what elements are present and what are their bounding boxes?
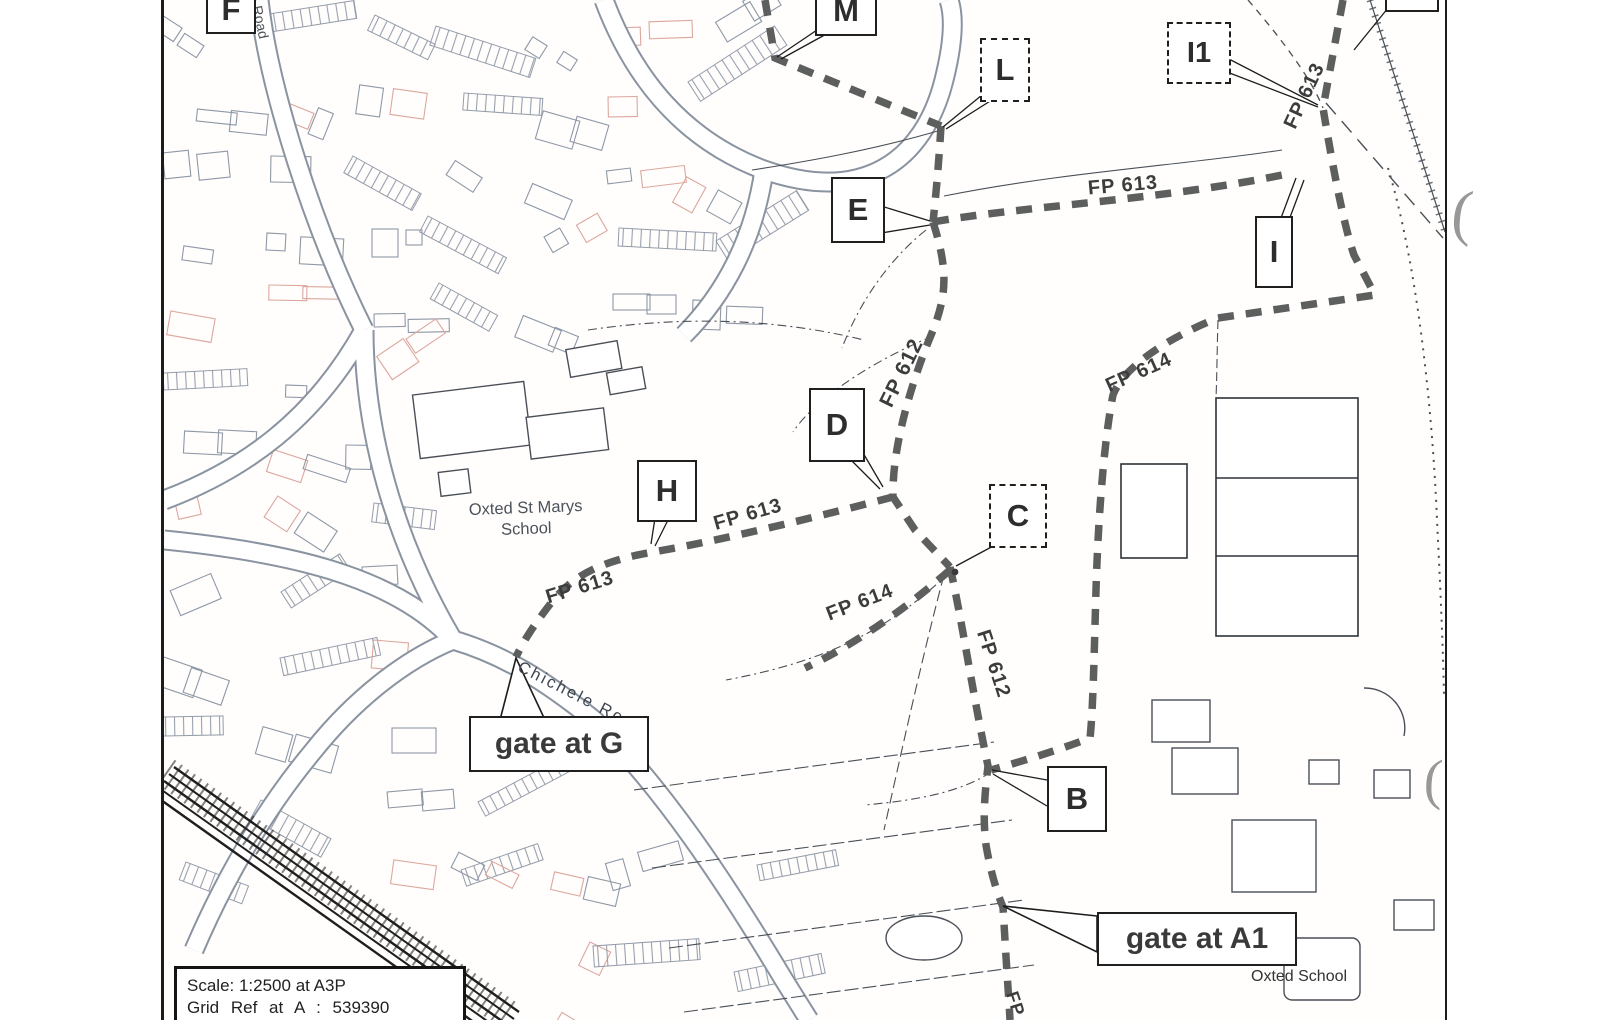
gate-at-a1-label: gate at A1 bbox=[1126, 922, 1268, 956]
marker-box-i: I bbox=[1255, 216, 1293, 288]
marker-letter: M bbox=[833, 0, 859, 29]
marker-letter: D bbox=[826, 407, 848, 443]
scale-line: Scale: 1:2500 at A3P bbox=[187, 975, 453, 997]
marker-letter: B bbox=[1066, 781, 1088, 817]
gate-at-a1-callout: gate at A1 bbox=[1097, 912, 1297, 966]
marker-letter: H bbox=[656, 473, 678, 509]
marker-letter: E bbox=[848, 192, 869, 228]
map-canvas: F M L I1 I E D H C B gate at G gate at A… bbox=[161, 0, 1447, 1020]
oxted-school-label: Oxted School bbox=[1251, 968, 1347, 986]
scale-box: Scale: 1:2500 at A3P Grid Ref at A : 539… bbox=[174, 966, 466, 1020]
marker-box-f: F bbox=[206, 0, 256, 34]
marker-letter: I bbox=[1270, 234, 1279, 270]
scan-artifact-bracket-bottom: ( bbox=[1422, 748, 1444, 813]
footpath-613-614-east bbox=[991, 0, 1375, 770]
marker-box-h: H bbox=[637, 460, 697, 522]
gate-at-g-label: gate at G bbox=[495, 727, 623, 761]
marker-box-i1: I1 bbox=[1167, 22, 1231, 84]
st-marys-school-label: Oxted St Marys School bbox=[450, 495, 601, 542]
marker-box-m: M bbox=[815, 0, 877, 36]
buildings-layer bbox=[413, 337, 1434, 1000]
marker-box-partial bbox=[1385, 0, 1439, 12]
footpath-l-to-e bbox=[933, 126, 941, 222]
marker-box-l: L bbox=[980, 38, 1030, 102]
grid-ref-line: Grid Ref at A : 539390 bbox=[187, 997, 453, 1019]
marker-box-d: D bbox=[809, 388, 865, 462]
scanned-map-page: F M L I1 I E D H C B gate at G gate at A… bbox=[0, 0, 1600, 1020]
gate-at-g-callout: gate at G bbox=[469, 716, 649, 772]
marker-letter: L bbox=[996, 52, 1015, 88]
marker-letter: I1 bbox=[1187, 37, 1211, 70]
scan-artifact-bracket-top: ( bbox=[1448, 177, 1476, 250]
marker-box-e: E bbox=[831, 177, 885, 243]
marker-box-c: C bbox=[989, 484, 1047, 548]
base-map-svg bbox=[164, 0, 1445, 1020]
marker-letter: F bbox=[222, 0, 241, 28]
marker-letter: C bbox=[1007, 498, 1029, 534]
marker-box-b: B bbox=[1047, 766, 1107, 832]
